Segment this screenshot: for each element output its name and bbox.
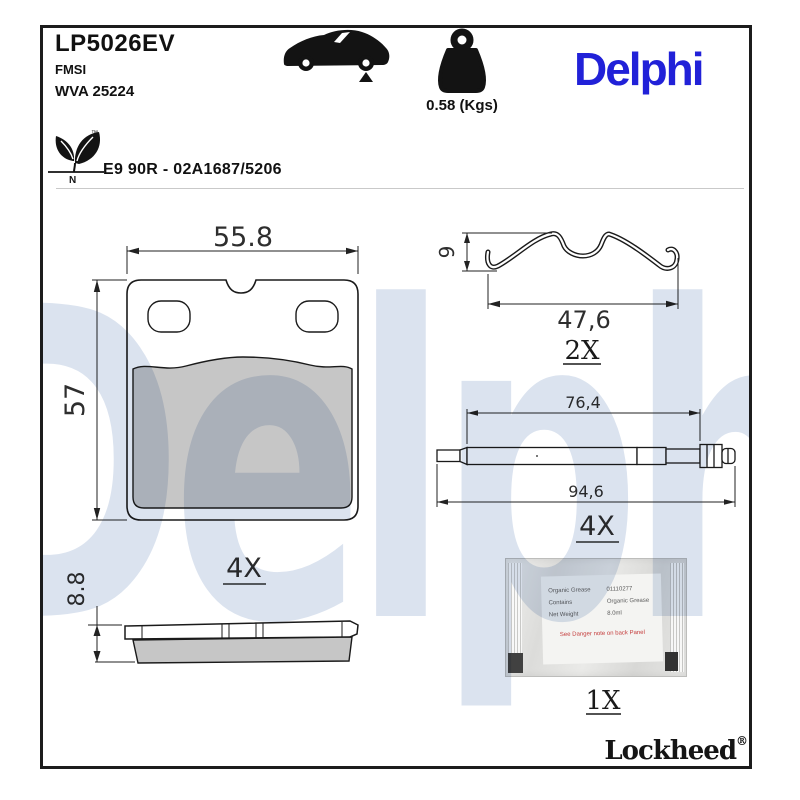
grease-sachet-photo: Organic Grease 01110277 Contains Organic… (505, 558, 687, 677)
clip-width-value: 47,6 (557, 306, 610, 334)
clip-quantity-label: 2X (563, 336, 601, 366)
friction-material (133, 357, 352, 508)
dim-pad-thickness: 8.8 (65, 572, 135, 663)
sachet-quantity-label: 1X (585, 686, 621, 716)
technical-drawings: 55.8 57 4X 9 (0, 0, 800, 800)
registered-symbol: ® (736, 734, 748, 748)
sachet-warning-text: See Danger note on back Panel (549, 630, 655, 639)
lockheed-logo: Lockheed® (590, 734, 748, 766)
sachet-quantity: 1X (585, 686, 621, 716)
dim-pin-overall: 94,6 (437, 464, 735, 507)
sachet-corner-mark (665, 652, 678, 671)
pin-overall-value: 94,6 (568, 482, 604, 501)
spring-clip-outline (487, 234, 677, 269)
pin-inner-value: 76,4 (565, 393, 601, 412)
sachet-row-value: 8.0ml (607, 607, 655, 620)
sachet-corner-mark (508, 653, 523, 673)
pad-side-view (125, 621, 358, 663)
pin-view (437, 445, 735, 468)
pin-quantity: 4X (579, 511, 615, 542)
pad-thickness-value: 8.8 (65, 572, 90, 607)
dim-pin-inner: 76,4 (467, 393, 700, 444)
side-backplate (125, 621, 358, 639)
pad-front-view (127, 280, 358, 520)
side-friction-material (133, 637, 352, 663)
lockheed-wordmark: Lockheed (604, 736, 736, 766)
sachet-label-row: Net Weight 8.0ml (549, 607, 655, 622)
spring-clip-view (487, 234, 677, 269)
pad-quantity-label: 4X (223, 553, 266, 584)
dim-pad-height: 57 (60, 280, 127, 520)
pad-quantity: 4X (226, 553, 262, 584)
dim-pad-width: 55.8 (127, 222, 358, 274)
pin-quantity-label: 4X (576, 511, 619, 542)
backplate-hole-left (148, 301, 190, 332)
backplate-hole-right (296, 301, 338, 332)
sachet-label: Organic Grease 01110277 Contains Organic… (541, 573, 663, 664)
dim-clip-width: 47,6 (488, 258, 678, 334)
pad-width-value: 55.8 (213, 222, 273, 253)
clip-height-value: 9 (435, 246, 459, 259)
sachet-row-key: Net Weight (549, 608, 608, 622)
clip-quantity: 2X (564, 336, 600, 366)
pad-height-value: 57 (60, 383, 91, 417)
parts-spec-sheet: LP5026EV FMSI WVA 25224 Delphi E9 90R - … (0, 0, 800, 800)
